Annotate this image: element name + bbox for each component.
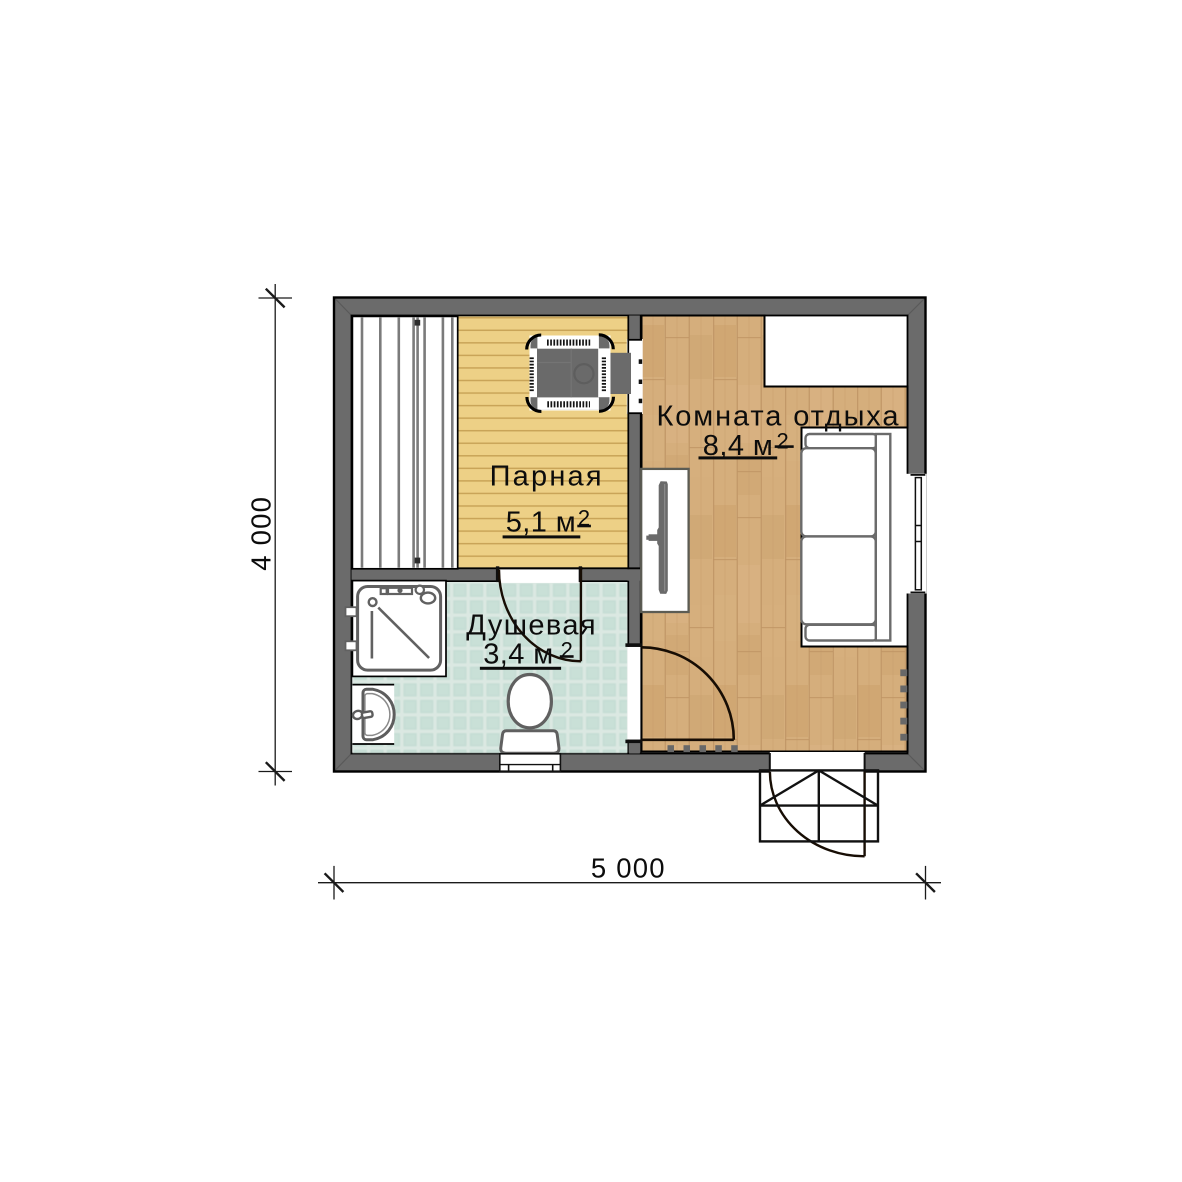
- svg-text:Душевая: Душевая: [466, 610, 595, 642]
- svg-text:3,4 м: 3,4 м: [483, 639, 553, 671]
- svg-text:2: 2: [776, 428, 788, 453]
- svg-text:5 000: 5 000: [591, 853, 666, 884]
- svg-text:2: 2: [561, 638, 573, 663]
- svg-text:5,1 м: 5,1 м: [506, 506, 576, 538]
- svg-text:4 000: 4 000: [246, 496, 277, 571]
